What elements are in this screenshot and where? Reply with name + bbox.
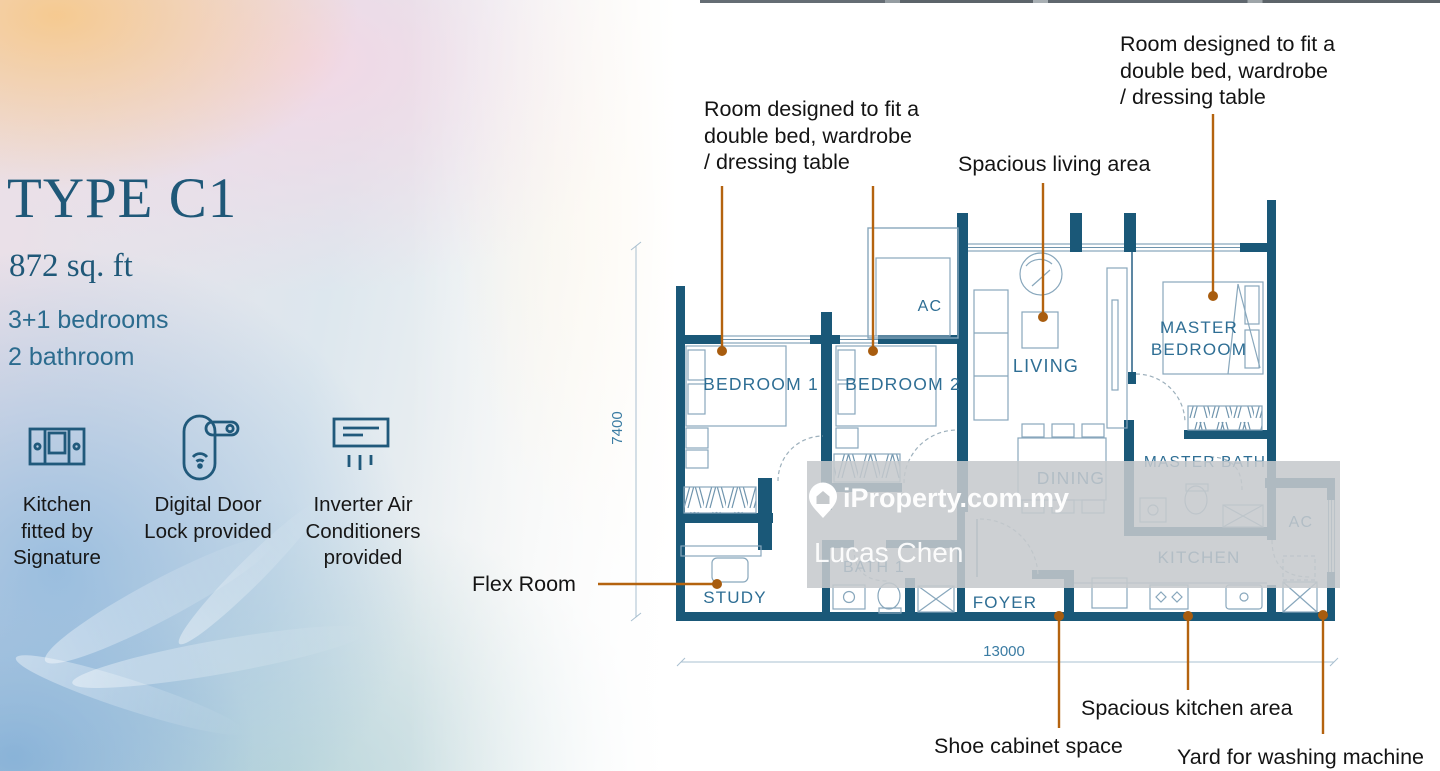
annotation-bedroom-note-left: Room designed to fit a double bed, wardr… xyxy=(704,96,919,176)
room-label-bedroom2: BEDROOM 2 xyxy=(845,374,961,394)
room-label-master-1: MASTER xyxy=(1160,318,1238,337)
room-label-bedroom1: BEDROOM 1 xyxy=(703,374,819,394)
dimension-height-label: 7400 xyxy=(609,411,626,444)
annotation-bedroom-note-right: Room designed to fit a double bed, wardr… xyxy=(1120,31,1335,111)
annotation-yard: Yard for washing machine xyxy=(1177,744,1424,771)
watermark: iProperty.com.my Lucas Chen xyxy=(807,461,1340,588)
watermark-agent: Lucas Chen xyxy=(814,537,963,568)
room-label-master-2: BEDROOM xyxy=(1151,340,1247,359)
room-label-foyer: FOYER xyxy=(973,593,1038,612)
annotation-flex-room: Flex Room xyxy=(472,571,576,598)
annotation-shoe-cabinet: Shoe cabinet space xyxy=(934,733,1123,760)
room-label-ac-top: AC xyxy=(918,298,943,315)
room-label-study: STUDY xyxy=(703,588,767,607)
annotation-kitchen: Spacious kitchen area xyxy=(1081,695,1293,722)
annotation-living: Spacious living area xyxy=(958,151,1150,178)
floorplan-page: { "left_panel": { "title": "TYPE C1", "a… xyxy=(0,0,1440,771)
watermark-brand: iProperty.com.my xyxy=(843,483,1069,513)
dimension-width-label: 13000 xyxy=(983,643,1025,660)
room-label-living: LIVING xyxy=(1013,356,1079,376)
